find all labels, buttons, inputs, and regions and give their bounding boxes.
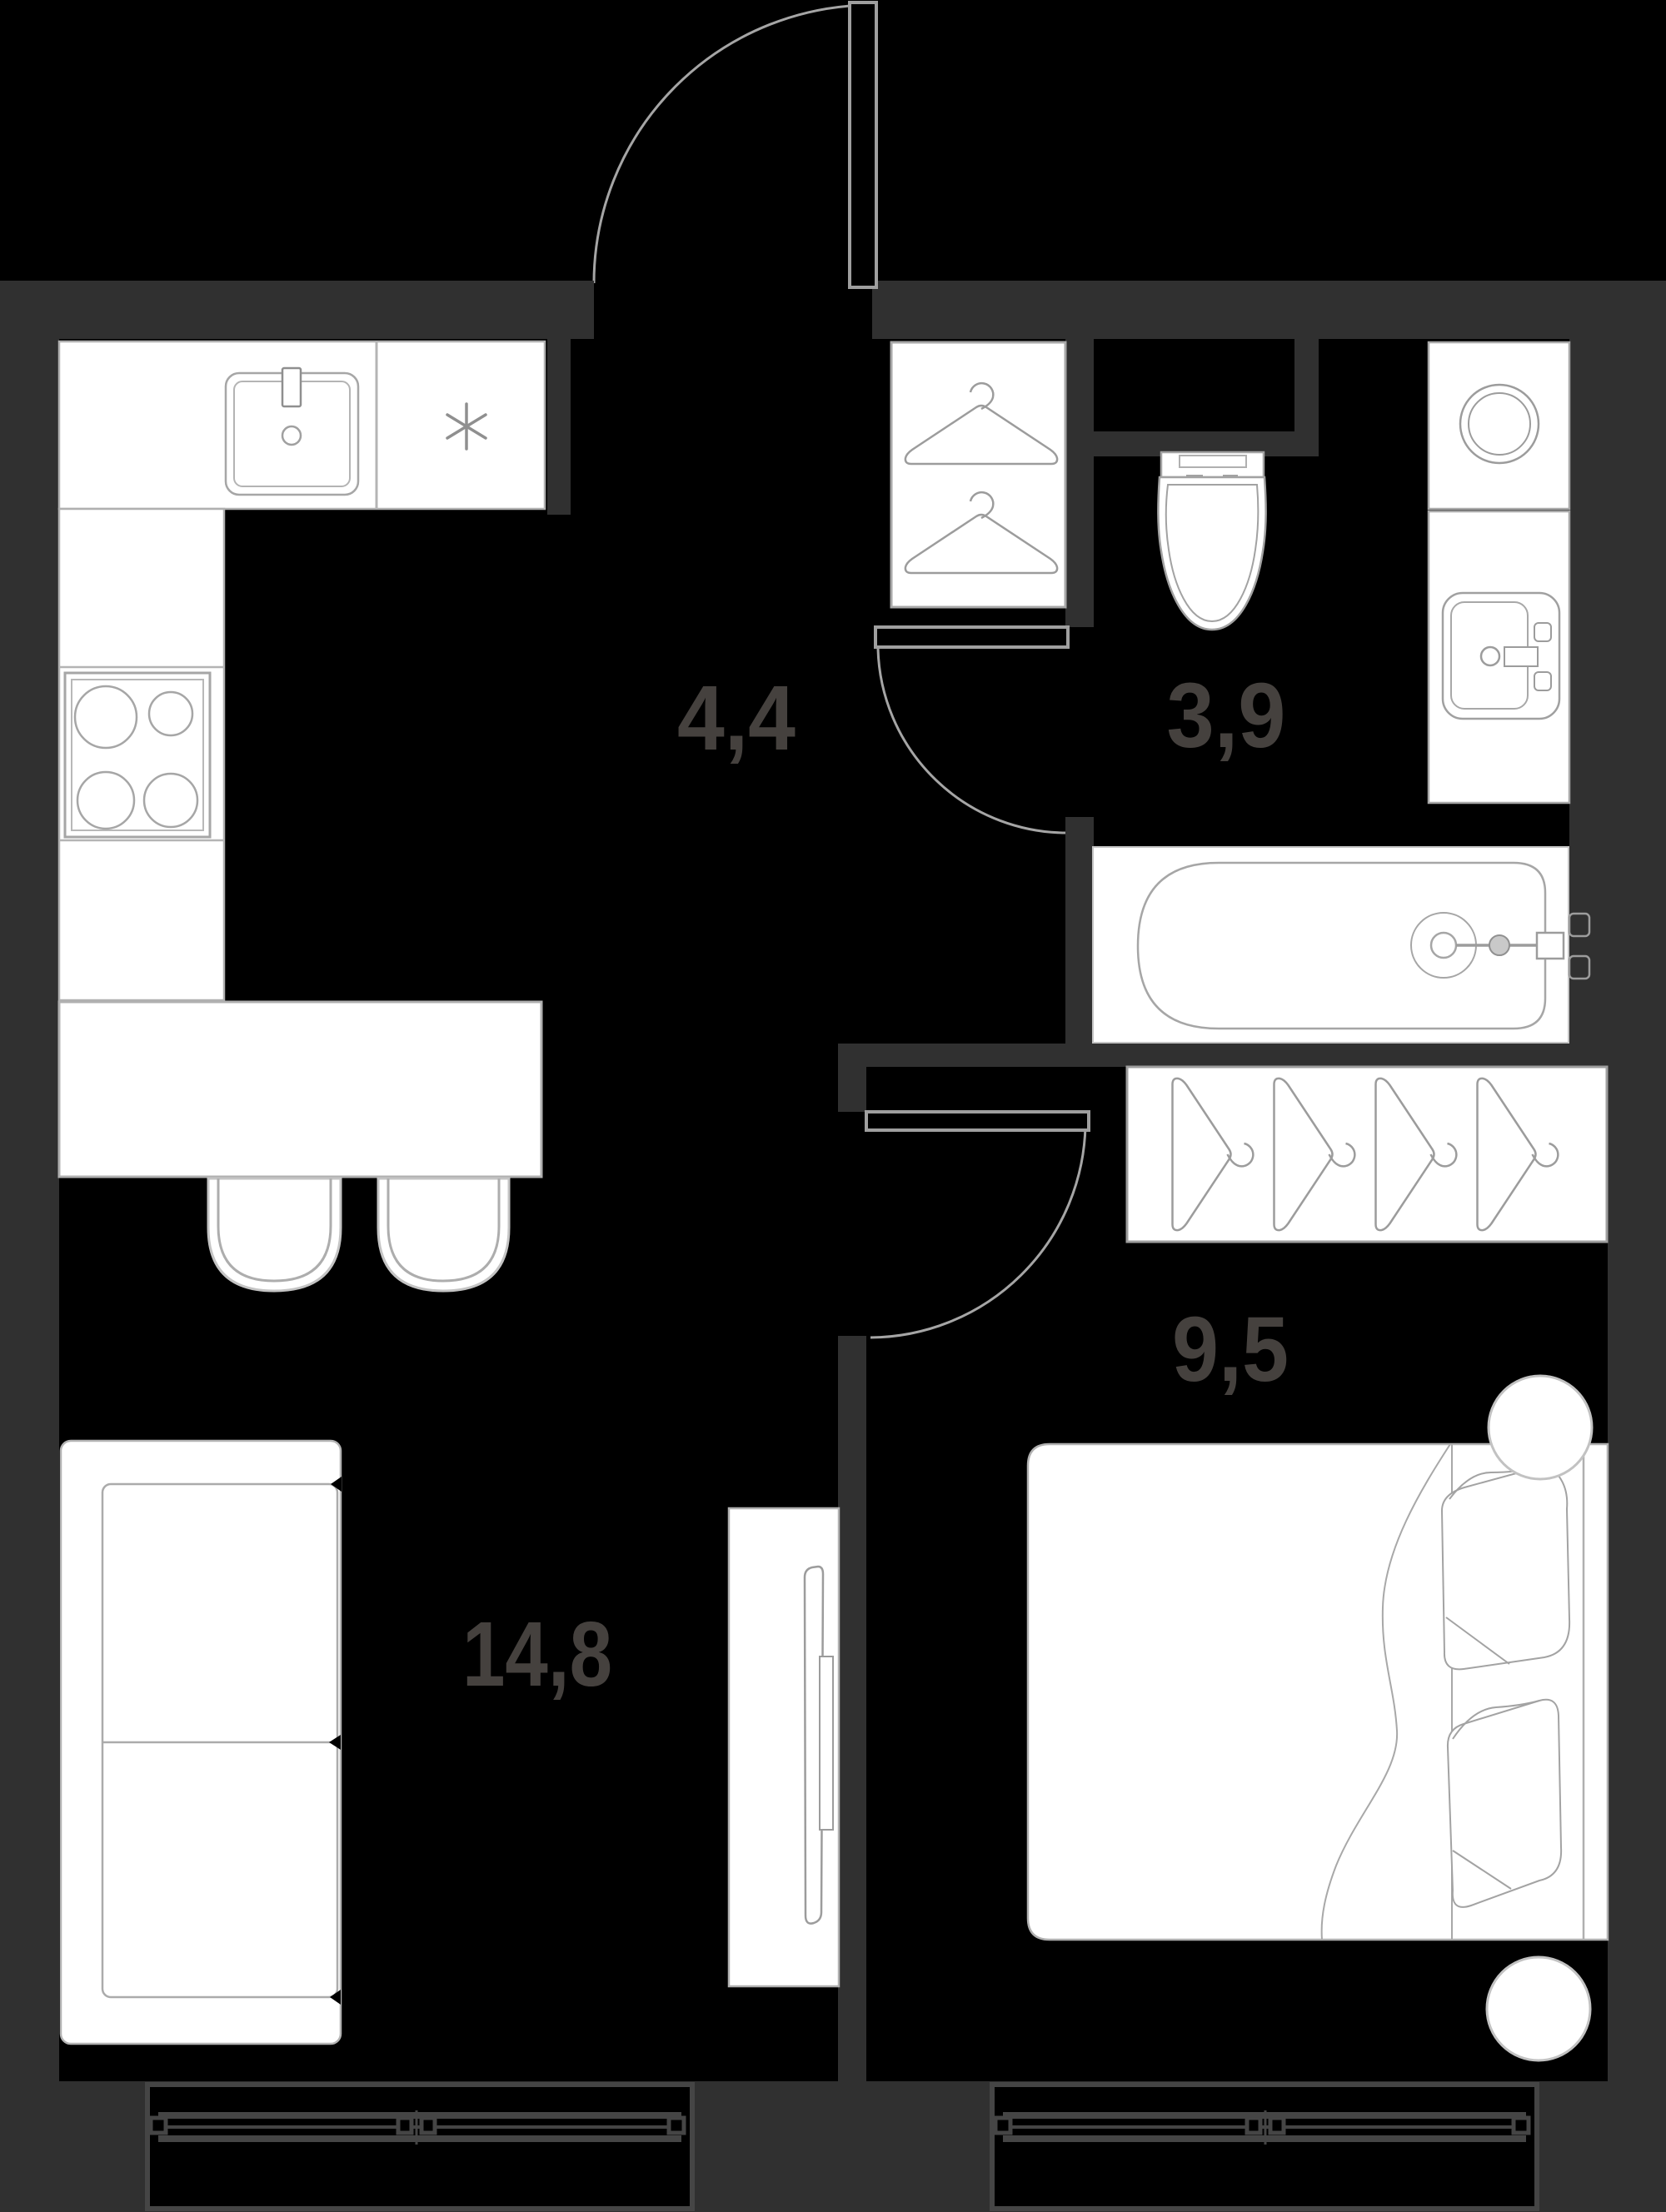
svg-text:14,8: 14,8 [462,1603,612,1706]
svg-text:9,5: 9,5 [1172,1298,1289,1401]
svg-text:3,9: 3,9 [1167,665,1286,767]
svg-text:4,4: 4,4 [677,667,796,770]
